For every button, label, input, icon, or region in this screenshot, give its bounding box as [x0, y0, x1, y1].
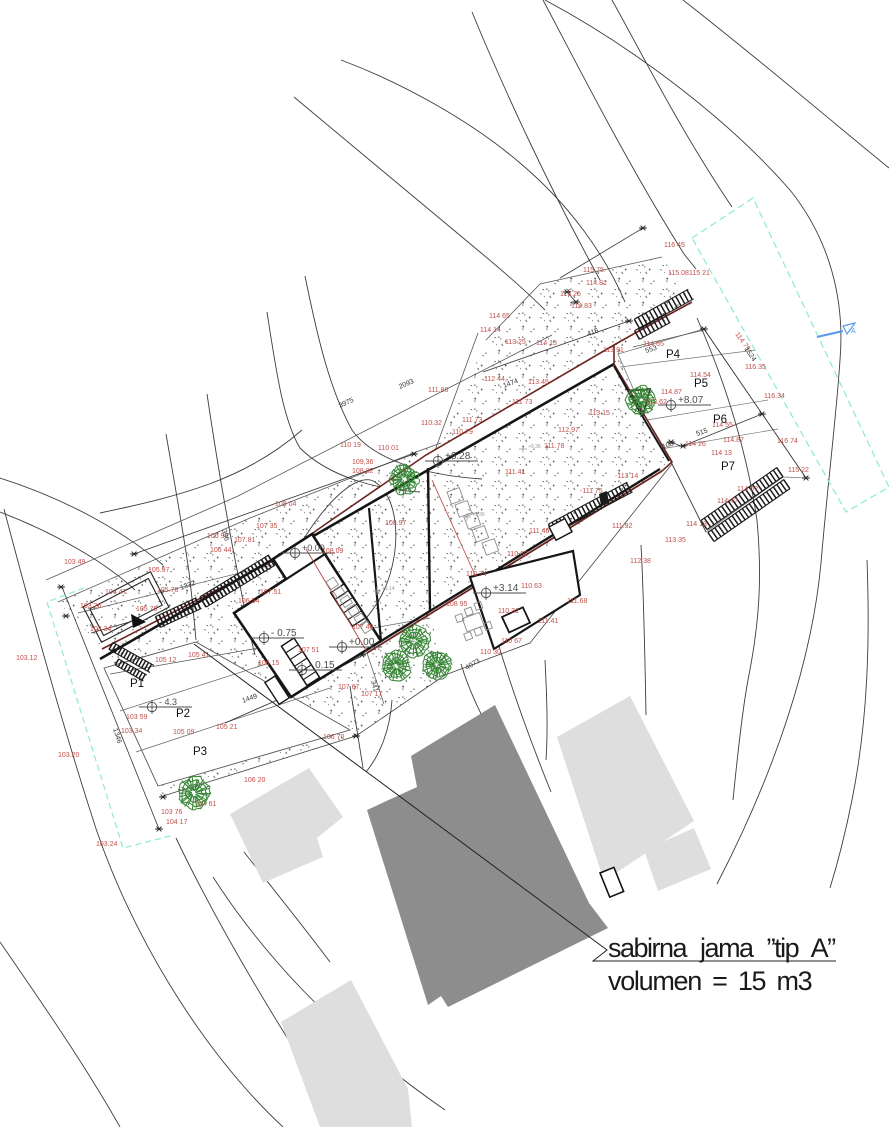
svg-text:114 13: 114 13 — [536, 340, 557, 347]
svg-text:110.31: 110.31 — [498, 608, 519, 615]
svg-text:103 34: 103 34 — [90, 626, 112, 633]
svg-text:103 34: 103 34 — [121, 728, 143, 735]
svg-text:111.86: 111.86 — [428, 387, 448, 394]
svg-text:104 17: 104 17 — [166, 819, 188, 826]
svg-text:110 79: 110 79 — [452, 429, 473, 436]
svg-text:+0.00: +0.00 — [349, 637, 375, 648]
svg-text:106 44,: 106 44, — [210, 547, 233, 554]
svg-text:115.75.: 115.75. — [583, 267, 606, 274]
svg-text:107.51: 107.51 — [260, 589, 282, 596]
svg-text:114 6?: 114 6? — [737, 486, 758, 493]
svg-text:113.25: 113.25 — [505, 339, 526, 346]
svg-text:116 74: 116 74 — [777, 438, 798, 445]
svg-text:P3: P3 — [193, 746, 207, 758]
svg-text:108.97: 108.97 — [385, 520, 407, 527]
svg-text:volumen = 15 m3: volumen = 15 m3 — [608, 966, 812, 996]
svg-text:110 67: 110 67 — [501, 638, 522, 645]
svg-text:105 21: 105 21 — [216, 724, 238, 731]
svg-text:111.78: 111.78 — [544, 443, 564, 450]
svg-text:113 15: 113 15 — [589, 410, 610, 417]
svg-text:115 21: 115 21 — [689, 270, 710, 277]
svg-text:105 09: 105 09 — [173, 729, 195, 736]
svg-text:115.25: 115.25 — [560, 291, 581, 298]
svg-text:110 30: 110 30 — [480, 649, 501, 656]
svg-text:107.81: 107.81 — [234, 537, 256, 544]
svg-text:113 91: 113 91 — [603, 347, 624, 354]
svg-text:109,36: 109,36 — [352, 459, 374, 466]
svg-text:113.62: 113.62 — [646, 399, 667, 406]
svg-text:106 15: 106 15 — [258, 660, 280, 667]
svg-text:+3.14: +3.14 — [493, 583, 519, 594]
svg-text:108.09: 108.09 — [322, 548, 344, 555]
svg-text:+3.14: +3.14 — [382, 586, 395, 592]
svg-text:103.24: 103.24 — [96, 841, 118, 848]
svg-text:114.87: 114.87 — [661, 389, 682, 396]
svg-text:104 61: 104 61 — [195, 801, 217, 808]
svg-text:103 26: 103 26 — [80, 603, 102, 610]
svg-text:107 67,: 107 67, — [338, 684, 361, 691]
svg-text:A: A — [851, 328, 856, 335]
svg-text:P5: P5 — [694, 378, 708, 390]
svg-text:106 70: 106 70 — [323, 734, 345, 741]
svg-text:114.54: 114.54 — [690, 372, 711, 379]
svg-text:111.41: 111.41 — [505, 469, 525, 476]
svg-text:116 45: 116 45 — [664, 242, 685, 249]
svg-text:114.87: 114.87 — [723, 437, 744, 444]
svg-text:116.34: 116.34 — [764, 393, 785, 400]
svg-text:+6.28: +6.28 — [445, 451, 471, 462]
svg-text:111 46: 111 46 — [529, 528, 549, 535]
svg-text:+8.07: +8.07 — [678, 395, 704, 406]
svg-text:111 73: 111 73 — [462, 417, 482, 424]
svg-text:- 4.3: - 4.3 — [159, 697, 177, 707]
svg-text:103 59: 103 59 — [126, 714, 148, 721]
svg-text:114.81: 114.81 — [586, 280, 607, 287]
svg-text:114.83: 114.83 — [571, 303, 592, 310]
svg-text:103.12: 103.12 — [16, 655, 38, 662]
svg-text:105.97: 105.97 — [148, 567, 170, 574]
svg-text:P1: P1 — [130, 678, 144, 690]
svg-text:103 76: 103 76 — [161, 809, 183, 816]
svg-text:104 47: 104 47 — [105, 589, 127, 596]
svg-text:106 20: 106 20 — [244, 777, 266, 784]
svg-text:105.78: 105.78 — [157, 587, 179, 594]
svg-text:111.41: 111.41 — [538, 618, 558, 625]
svg-text:106.54: 106.54 — [238, 598, 260, 605]
svg-text:111 73: 111 73 — [512, 399, 532, 406]
svg-text:P2: P2 — [176, 708, 190, 720]
svg-text:114 55: 114 55 — [712, 422, 733, 429]
svg-text:103 49: 103 49 — [64, 559, 86, 566]
svg-text:114 26: 114 26 — [685, 441, 706, 448]
svg-text:112.97: 112.97 — [558, 427, 579, 434]
svg-text:114 65: 114 65 — [489, 313, 510, 320]
svg-text:114 13: 114 13 — [711, 450, 732, 457]
svg-text:- 0.15: - 0.15 — [309, 660, 335, 671]
svg-text:+9.36: +9.36 — [528, 444, 541, 450]
svg-text:110 74: 110 74 — [466, 571, 487, 578]
svg-text:110.63: 110.63 — [521, 583, 542, 590]
svg-text:P7: P7 — [721, 461, 735, 473]
svg-text:111.92: 111.92 — [612, 523, 632, 530]
svg-text:115 22: 115 22 — [788, 467, 809, 474]
svg-text:111.68: 111.68 — [567, 598, 587, 605]
svg-text:108 95: 108 95 — [446, 601, 468, 608]
svg-text:105 12: 105 12 — [155, 657, 177, 664]
svg-text:107 46: 107 46 — [352, 624, 374, 631]
svg-text:105 76: 105 76 — [136, 606, 158, 613]
svg-text:107 51: 107 51 — [298, 647, 320, 654]
svg-text:108.82: 108.82 — [352, 468, 374, 475]
svg-text:P4: P4 — [666, 349, 681, 361]
svg-text:110 01: 110 01 — [378, 445, 399, 452]
svg-text:114 4?: 114 4? — [717, 498, 738, 505]
svg-text:110.32: 110.32 — [421, 420, 442, 427]
svg-text:112.38: 112.38 — [630, 558, 651, 565]
svg-text:110 62: 110 62 — [507, 551, 528, 558]
svg-text:- 0.75: - 0.75 — [271, 628, 297, 639]
svg-text:114 14: 114 14 — [480, 327, 501, 334]
svg-text:110 19: 110 19 — [340, 442, 361, 449]
svg-text:107 17: 107 17 — [361, 691, 383, 698]
svg-text:113.45: 113.45 — [528, 379, 549, 386]
svg-text:107 35: 107 35 — [256, 523, 278, 530]
svg-text:113.35: 113.35 — [665, 537, 686, 544]
svg-text:-111 75: -111 75 — [580, 488, 603, 495]
svg-text:sabirna jama ”tip A”: sabirna jama ”tip A” — [608, 933, 835, 963]
svg-text:115.08: 115.08 — [668, 270, 689, 277]
svg-text:-113 14: -113 14 — [615, 473, 638, 480]
svg-text:116.35: 116.35 — [745, 364, 766, 371]
svg-text:103.20: 103.20 — [58, 752, 80, 759]
svg-text:114 13: 114 13 — [686, 521, 707, 528]
svg-text:108 04: 108 04 — [275, 501, 297, 508]
svg-text:+9.36: +9.36 — [472, 512, 485, 518]
